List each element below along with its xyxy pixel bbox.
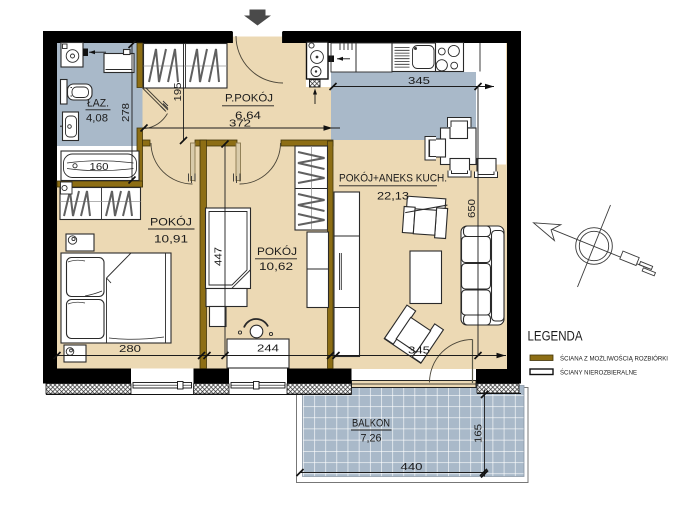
svg-text:280: 280	[119, 344, 142, 355]
svg-text:447: 447	[214, 247, 225, 266]
svg-text:POKÓJ: POKÓJ	[150, 216, 192, 229]
svg-text:650: 650	[467, 199, 478, 218]
svg-text:7,26: 7,26	[361, 433, 382, 445]
svg-text:ŚCIANA Z MOŻLIWOŚCIĄ ROZBIÓRKI: ŚCIANA Z MOŻLIWOŚCIĄ ROZBIÓRKI	[560, 355, 668, 363]
svg-text:22,13: 22,13	[377, 191, 409, 203]
svg-text:P.POKÓJ: P.POKÓJ	[225, 92, 273, 105]
svg-text:ŁAZ.: ŁAZ.	[87, 98, 109, 110]
svg-text:10,62: 10,62	[259, 261, 293, 273]
svg-text:4,08: 4,08	[86, 113, 108, 125]
svg-text:LEGENDA: LEGENDA	[528, 329, 583, 344]
svg-text:ŚCIANY NIEROZBIERALNE: ŚCIANY NIEROZBIERALNE	[560, 369, 637, 377]
svg-text:6,64: 6,64	[235, 110, 261, 122]
svg-text:BALKON: BALKON	[352, 418, 390, 430]
svg-text:POKÓJ: POKÓJ	[257, 245, 297, 258]
svg-text:345: 345	[408, 76, 431, 87]
svg-text:278: 278	[121, 103, 132, 122]
svg-text:244: 244	[257, 344, 280, 355]
svg-text:POKÓJ+ANEKS KUCH.: POKÓJ+ANEKS KUCH.	[339, 172, 447, 185]
svg-text:345: 345	[408, 346, 431, 357]
svg-text:10,91: 10,91	[154, 234, 188, 246]
svg-text:440: 440	[401, 462, 424, 473]
svg-text:195: 195	[173, 82, 184, 101]
svg-text:165: 165	[474, 424, 485, 443]
svg-text:160: 160	[90, 162, 109, 173]
